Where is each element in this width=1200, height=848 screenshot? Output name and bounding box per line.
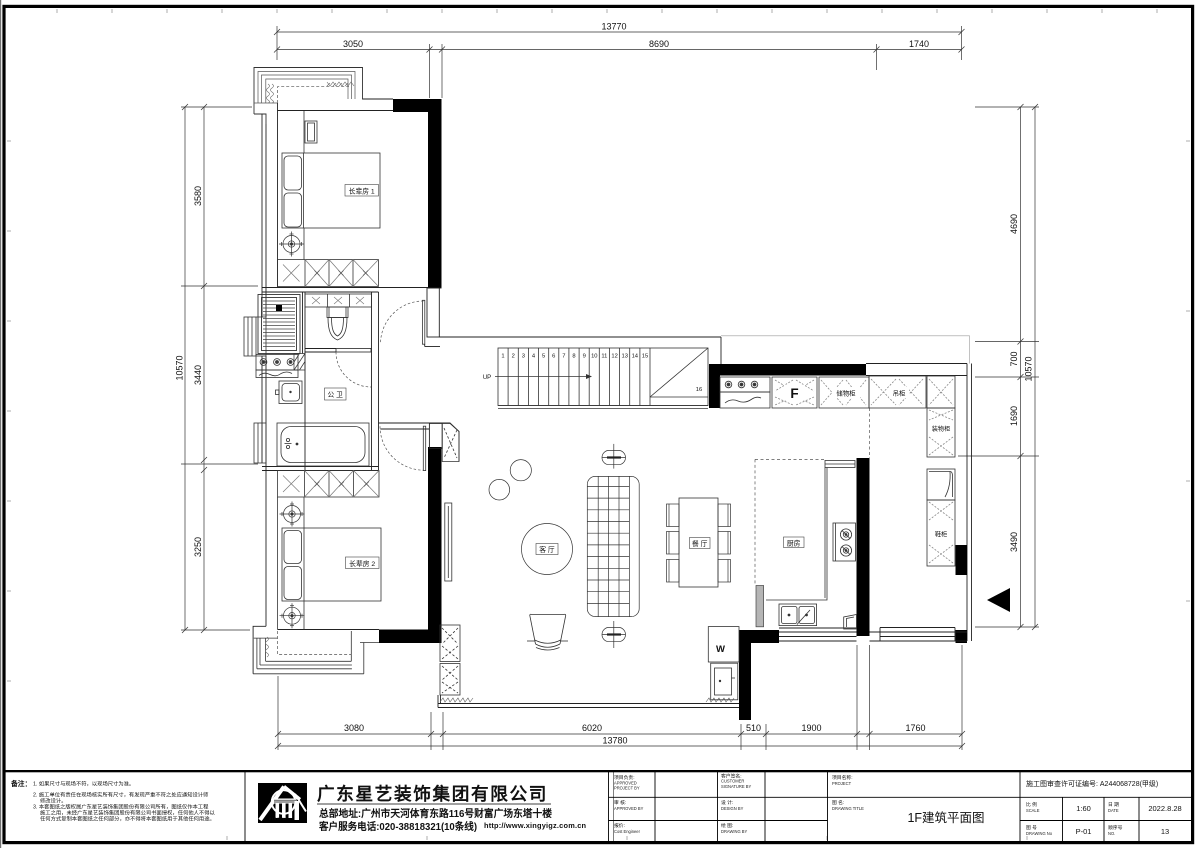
svg-text:2: 2: [512, 354, 515, 360]
svg-text:13: 13: [1161, 827, 1169, 836]
svg-text:施工之用，未经广东星艺装饰集团股份有限公司书面授权，任何他人: 施工之用，未经广东星艺装饰集团股份有限公司书面授权，任何他人不得以: [40, 809, 216, 817]
svg-text:13780: 13780: [602, 736, 627, 746]
svg-text:任何方式复制本套图纸之任何部分，亦不得将本套图纸用于其他任何: 任何方式复制本套图纸之任何部分，亦不得将本套图纸用于其他任何用途。: [40, 815, 215, 823]
svg-text:7: 7: [562, 354, 565, 360]
svg-text:NO.: NO.: [1108, 831, 1115, 836]
svg-text:1: 1: [501, 354, 504, 360]
svg-text:图 名:: 图 名:: [832, 799, 844, 806]
svg-text:储物柜: 储物柜: [836, 389, 856, 398]
svg-text:PROJECT: PROJECT: [832, 781, 852, 786]
svg-text:长辈房 1: 长辈房 1: [349, 187, 375, 196]
svg-text:吊柜: 吊柜: [893, 389, 906, 398]
svg-text:施工图审查许可证编号: A244068728(甲级): 施工图审查许可证编号: A244068728(甲级): [1026, 779, 1158, 788]
svg-text:CUSTOMER: CUSTOMER: [721, 779, 744, 784]
svg-text:厨房: 厨房: [787, 539, 801, 548]
svg-text:4690: 4690: [1009, 214, 1019, 234]
svg-text:DRAWING TITLE: DRAWING TITLE: [832, 806, 864, 811]
svg-text:项目名称:: 项目名称:: [832, 774, 853, 781]
svg-text:W: W: [716, 644, 725, 655]
svg-text:3490: 3490: [1009, 532, 1019, 552]
svg-text:设 计:: 设 计:: [721, 799, 733, 806]
svg-text:16: 16: [696, 387, 702, 393]
svg-text:2. 施工单位有责任在现场核实所有尺寸，有发现严重不符之处应: 2. 施工单位有责任在现场核实所有尺寸，有发现严重不符之处应通知设计师: [33, 791, 209, 799]
svg-text:餐 厅: 餐 厅: [692, 539, 708, 548]
svg-text:顺序号: 顺序号: [1108, 824, 1123, 831]
svg-text:10570: 10570: [175, 355, 185, 380]
svg-text:APPROVED BY: APPROVED BY: [614, 806, 644, 811]
svg-text:UP: UP: [483, 375, 491, 381]
svg-text:XING YI: XING YI: [269, 817, 287, 821]
svg-text:SCALE: SCALE: [1026, 808, 1040, 813]
svg-text:3250: 3250: [193, 537, 203, 557]
svg-text:DRAWING BY: DRAWING BY: [721, 829, 748, 834]
svg-text:备注：: 备注：: [10, 779, 31, 788]
svg-text:9: 9: [583, 354, 586, 360]
svg-text:绘 图:: 绘 图:: [721, 822, 733, 829]
svg-text:13: 13: [621, 354, 627, 360]
svg-text:1F建筑平面图: 1F建筑平面图: [907, 810, 984, 825]
svg-text:2022.8.28: 2022.8.28: [1148, 804, 1181, 813]
svg-text:装物柜: 装物柜: [932, 425, 951, 433]
svg-text:F: F: [790, 386, 798, 401]
svg-text:12: 12: [611, 354, 617, 360]
svg-text:8690: 8690: [649, 39, 669, 49]
svg-text:DATE: DATE: [1108, 808, 1119, 813]
svg-text:http://www.xingyigz.com.cn: http://www.xingyigz.com.cn: [484, 821, 587, 830]
svg-text:长辈房 2: 长辈房 2: [349, 559, 375, 568]
svg-text:SIGNATURE BY: SIGNATURE BY: [721, 784, 751, 789]
svg-text:PROJECT BY: PROJECT BY: [614, 786, 640, 791]
svg-text:P-01: P-01: [1076, 827, 1092, 836]
svg-text:鞋柜: 鞋柜: [935, 531, 947, 539]
svg-text:1760: 1760: [905, 723, 925, 733]
svg-text:8: 8: [572, 354, 575, 360]
svg-text:1740: 1740: [909, 39, 929, 49]
svg-text:3080: 3080: [344, 723, 364, 733]
svg-text:3050: 3050: [343, 39, 363, 49]
svg-text:1:60: 1:60: [1076, 804, 1091, 813]
svg-text:700: 700: [1009, 351, 1019, 366]
svg-text:6: 6: [552, 354, 555, 360]
svg-text:客 厅: 客 厅: [539, 545, 555, 554]
svg-text:Cost Engineer: Cost Engineer: [614, 829, 641, 834]
svg-text:3580: 3580: [193, 186, 203, 206]
svg-text:510: 510: [746, 723, 761, 733]
svg-text:公 卫: 公 卫: [327, 391, 343, 399]
svg-text:11: 11: [601, 354, 607, 360]
svg-text:比 例: 比 例: [1026, 801, 1037, 808]
svg-text:15: 15: [642, 354, 648, 360]
svg-text:总部地址:广州市天河体育东路116号财富广场东塔十楼: 总部地址:广州市天河体育东路116号财富广场东塔十楼: [319, 807, 553, 820]
svg-text:DESIGN BY: DESIGN BY: [721, 806, 744, 811]
svg-text:10: 10: [591, 354, 597, 360]
svg-text:3. 本套图纸之版权属广东星艺装饰集团股份有限公司所有，图纸: 3. 本套图纸之版权属广东星艺装饰集团股份有限公司所有，图纸仅作本工程: [33, 803, 209, 811]
svg-text:5: 5: [542, 354, 545, 360]
svg-text:审 核:: 审 核:: [614, 799, 626, 806]
svg-text:客户服务电话:020-38818321(10条线): 客户服务电话:020-38818321(10条线): [318, 820, 477, 833]
svg-text:13770: 13770: [601, 22, 626, 32]
svg-text:DRAWING No: DRAWING No: [1026, 831, 1053, 836]
svg-text:报价:: 报价:: [614, 822, 625, 829]
svg-text:修改设计。: 修改设计。: [40, 797, 67, 805]
svg-text:3: 3: [522, 354, 525, 360]
svg-text:1900: 1900: [801, 723, 821, 733]
svg-text:10570: 10570: [1024, 356, 1034, 381]
svg-text:3440: 3440: [193, 365, 203, 385]
svg-text:6020: 6020: [582, 723, 602, 733]
svg-text:广东星艺装饰集团有限公司: 广东星艺装饰集团有限公司: [317, 784, 548, 804]
svg-text:14: 14: [632, 354, 639, 360]
svg-text:1690: 1690: [1009, 406, 1019, 426]
svg-text:1. 如果尺寸与现场不符，以现场尺寸为准。: 1. 如果尺寸与现场不符，以现场尺寸为准。: [33, 780, 134, 788]
